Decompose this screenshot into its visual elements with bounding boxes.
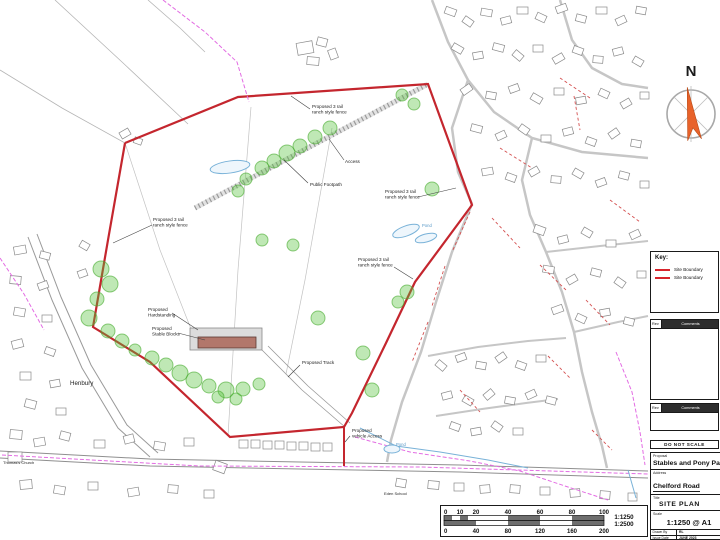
label-leader <box>113 225 152 243</box>
field-line <box>55 0 188 124</box>
scale-tick: 120 <box>535 529 546 535</box>
map-label: Proposed 3 rail <box>153 217 184 222</box>
map-label: Proposed 3 rail <box>385 189 416 194</box>
tree <box>365 383 379 397</box>
building <box>13 245 26 255</box>
road <box>522 138 607 468</box>
tree <box>311 311 325 325</box>
field-line <box>0 70 125 143</box>
road <box>0 451 648 471</box>
map-label: Eden School <box>384 491 407 496</box>
building <box>462 16 474 27</box>
label-leader <box>288 365 300 377</box>
building <box>596 7 607 14</box>
building <box>572 46 584 56</box>
building <box>590 268 601 277</box>
building <box>612 47 623 56</box>
building <box>311 443 320 451</box>
drawn-by-label: Drawn By <box>651 530 677 536</box>
building <box>575 14 586 23</box>
building <box>79 240 90 251</box>
building <box>287 442 296 450</box>
scale-ratio-label: 1:2500 <box>614 521 634 528</box>
scale-tick: 40 <box>505 510 512 516</box>
issue-date-row: Issue Date JUNE 2023 <box>651 536 720 540</box>
building <box>428 481 440 490</box>
label-leader <box>394 267 413 279</box>
building <box>533 45 543 52</box>
rev-column-header: Rev <box>651 404 662 412</box>
building <box>13 307 25 317</box>
map-label: Thomas's Church <box>3 460 34 465</box>
building <box>435 360 447 372</box>
building <box>44 347 56 357</box>
building <box>492 43 504 53</box>
building <box>296 41 314 56</box>
address-label: Address <box>653 471 720 475</box>
building <box>551 304 564 314</box>
building <box>551 176 562 184</box>
building <box>455 353 467 363</box>
revision-panel: Rev Comments <box>650 319 719 400</box>
boundary-dash <box>560 78 590 98</box>
building <box>20 372 31 380</box>
building <box>606 240 616 247</box>
building <box>24 399 37 410</box>
building <box>119 128 131 139</box>
tree <box>159 358 173 372</box>
drawn-by-value: RL <box>677 530 720 536</box>
label-leader <box>284 160 308 183</box>
building <box>480 8 492 17</box>
building <box>56 408 66 415</box>
key-entry-label: Site Boundary <box>674 267 703 272</box>
tree <box>93 261 109 277</box>
field-line <box>125 143 191 329</box>
building <box>11 339 24 350</box>
north-arrow-icon: N <box>660 60 720 156</box>
tree <box>279 145 295 161</box>
drawing-title: SITE PLAN <box>653 500 720 510</box>
label-leader <box>172 313 198 330</box>
proposed-track <box>268 346 350 423</box>
rev-column-header: Rev <box>651 320 662 328</box>
building <box>10 429 23 439</box>
label-leader <box>329 139 344 160</box>
tree <box>129 344 141 356</box>
building <box>127 487 139 497</box>
building <box>598 88 610 99</box>
building <box>275 441 284 449</box>
building <box>213 460 228 474</box>
building <box>528 166 540 177</box>
building <box>481 167 493 176</box>
building <box>33 437 45 447</box>
map-label: Pond <box>396 442 406 447</box>
building <box>518 124 530 135</box>
building <box>470 124 482 134</box>
map-label: Proposed <box>352 428 372 433</box>
tree <box>186 372 202 388</box>
building <box>263 441 272 449</box>
building <box>552 53 565 65</box>
building <box>555 3 568 13</box>
scale-tick: 0 <box>444 529 448 535</box>
building <box>491 421 503 432</box>
map-label: Pond <box>422 223 432 228</box>
north-arrow: N <box>660 60 720 156</box>
building <box>525 389 537 400</box>
address-value: Chelford Road <box>653 481 700 492</box>
scale-bar-rulers: 0 10 20 40 60 80 100 0 40 80 120 160 200 <box>441 506 646 535</box>
building <box>441 391 452 400</box>
building <box>629 229 641 240</box>
building <box>153 441 165 451</box>
building <box>572 168 584 179</box>
building <box>77 269 88 279</box>
tree <box>172 365 188 381</box>
building <box>462 395 474 406</box>
tree <box>81 310 97 326</box>
boundary-dash <box>610 200 640 222</box>
tree <box>400 285 414 299</box>
site-boundary-swatch <box>655 277 670 279</box>
rev-comments-header: Comments <box>662 404 718 412</box>
rev-comments-header: Comments <box>662 320 718 328</box>
map-label: Public Footpath <box>310 182 342 187</box>
building <box>239 440 248 448</box>
building <box>10 276 22 285</box>
map-label: Hardstanding <box>148 313 176 318</box>
scale-bar: 0 10 20 40 60 80 100 0 40 80 120 160 200 <box>440 505 648 537</box>
boundary-dash <box>548 356 570 378</box>
revision-panel: Rev Comments <box>650 403 719 431</box>
building <box>184 438 194 446</box>
building <box>328 48 339 60</box>
key-entry: Site Boundary <box>655 275 718 280</box>
map-label: ranch style fence <box>153 223 188 228</box>
tree <box>408 98 420 110</box>
building <box>630 139 641 148</box>
tree <box>90 292 104 306</box>
footpath-magenta <box>0 258 44 330</box>
building <box>585 137 597 147</box>
map-label: Proposed <box>152 326 172 331</box>
tree <box>293 139 307 153</box>
map-label: Stable Blocks <box>152 332 181 337</box>
building <box>608 128 620 139</box>
building <box>620 98 632 109</box>
tree <box>115 334 129 348</box>
building <box>485 91 496 100</box>
building <box>470 427 481 436</box>
building <box>530 93 543 105</box>
scale-tick: 20 <box>473 510 480 516</box>
building <box>20 479 33 489</box>
building <box>618 171 629 180</box>
building <box>575 313 587 324</box>
map-label: Proposed Track <box>302 360 335 365</box>
building <box>515 361 527 371</box>
building <box>533 224 546 235</box>
footpath-magenta <box>616 352 645 465</box>
building <box>37 281 49 291</box>
building <box>581 227 593 238</box>
building <box>49 379 60 388</box>
scale-tick: 200 <box>599 529 610 535</box>
pond <box>391 222 421 241</box>
map-label: Proposed <box>148 307 168 312</box>
building <box>39 251 50 260</box>
building <box>454 483 464 491</box>
building <box>512 50 524 62</box>
site-plan-map-canvas: Proposed 3 railranch style fenceProposed… <box>0 0 650 540</box>
map-label: Henbury <box>70 380 94 387</box>
tree <box>308 130 322 144</box>
label-leader <box>345 436 350 442</box>
building <box>483 389 495 401</box>
building <box>475 361 486 370</box>
map-label: Proposed 3 rail <box>312 104 343 109</box>
building <box>614 277 626 288</box>
building <box>88 482 98 490</box>
scale-tick: 10 <box>457 510 464 516</box>
road <box>387 204 472 462</box>
building <box>449 422 461 432</box>
tree <box>240 173 252 185</box>
building <box>495 352 507 363</box>
north-label: N <box>686 63 697 80</box>
road <box>428 338 566 356</box>
building <box>204 490 214 498</box>
building <box>299 442 308 450</box>
label-leader <box>291 96 310 109</box>
building <box>615 15 627 26</box>
building <box>554 88 564 95</box>
site-boundary-swatch <box>655 269 670 271</box>
tree <box>232 185 244 197</box>
proposed-stable-block <box>198 337 256 348</box>
building <box>123 434 135 444</box>
building <box>593 56 604 64</box>
boundary-dash <box>432 266 445 306</box>
footpath-magenta <box>163 0 249 102</box>
building <box>495 130 507 141</box>
building <box>575 96 586 105</box>
tree <box>356 346 370 360</box>
road <box>452 80 472 204</box>
address-row: Address Chelford Road <box>651 470 720 495</box>
building <box>395 478 406 488</box>
building <box>505 173 517 183</box>
building <box>536 355 546 362</box>
building <box>562 127 573 136</box>
building <box>535 12 547 23</box>
building <box>540 487 550 495</box>
title-row: Title SITE PLAN <box>651 495 720 512</box>
key-panel: Key: Site Boundary Site Boundary <box>650 251 719 313</box>
tree <box>202 379 216 393</box>
tree <box>323 121 337 135</box>
drawn-by-row: Drawn By RL <box>651 530 720 537</box>
building <box>517 7 528 14</box>
building <box>94 440 105 448</box>
building <box>570 489 581 498</box>
building <box>632 56 644 67</box>
tree <box>396 89 408 101</box>
key-heading: Key: <box>655 255 718 261</box>
tree <box>101 324 115 338</box>
scale-tick: 0 <box>444 510 448 516</box>
pond <box>414 231 437 244</box>
key-entry: Site Boundary <box>655 267 718 272</box>
building <box>42 315 52 322</box>
building <box>541 135 551 142</box>
tree <box>145 351 159 365</box>
drawing-sheet: Proposed 3 railranch style fenceProposed… <box>0 0 720 540</box>
tree <box>392 296 404 308</box>
building <box>510 485 521 494</box>
scale-tick: 80 <box>505 529 512 535</box>
building <box>480 485 491 494</box>
map-label: ranch style fence <box>312 110 347 115</box>
scale-tick: 100 <box>599 510 610 516</box>
building <box>307 56 320 65</box>
building <box>637 271 646 278</box>
building <box>59 431 71 441</box>
map-label: Access <box>345 159 361 164</box>
site-boundary <box>93 84 472 437</box>
building <box>640 92 649 99</box>
issue-date-label: Issue Date <box>651 536 677 540</box>
building <box>323 443 332 451</box>
tree <box>287 239 299 251</box>
building <box>504 396 515 405</box>
building <box>566 274 578 285</box>
tree <box>253 378 265 390</box>
key-entry-label: Site Boundary <box>674 275 703 280</box>
road <box>436 399 558 416</box>
building <box>595 178 607 188</box>
scale-tick: 60 <box>537 510 544 516</box>
map-label: ranch style fence <box>358 263 393 268</box>
building <box>251 440 260 448</box>
map-label: vehicle Access <box>352 434 383 439</box>
scale-ratio-label: 1:1250 <box>614 514 634 521</box>
do-not-scale-note: DO NOT SCALE <box>650 440 719 449</box>
building <box>545 396 556 405</box>
building <box>599 308 610 317</box>
scale-tick: 40 <box>473 529 480 535</box>
tree <box>256 234 268 246</box>
building <box>635 6 646 15</box>
boundary-dash <box>492 218 520 248</box>
map-label: ranch style fence <box>385 195 420 200</box>
tree <box>230 393 242 405</box>
building <box>168 485 179 494</box>
building <box>444 6 457 16</box>
tree <box>212 391 224 403</box>
building <box>508 84 520 94</box>
title-block: Proposal Stables and Pony Pa Address Che… <box>650 452 720 540</box>
scale-row: Scale 1:1250 @ A1 <box>651 511 720 530</box>
building <box>640 181 649 188</box>
scale-value: 1:1250 @ A1 <box>653 516 720 528</box>
building <box>513 428 523 435</box>
map-label: Proposed 3 rail <box>358 257 389 262</box>
building <box>316 37 328 47</box>
proposal-value: Stables and Pony Pa <box>653 458 720 468</box>
building <box>557 235 568 244</box>
building <box>53 485 65 495</box>
building <box>500 16 511 25</box>
building <box>472 51 483 60</box>
footpath-magenta <box>2 455 648 474</box>
proposal-row: Proposal Stables and Pony Pa <box>651 453 720 470</box>
scale-tick: 160 <box>567 529 578 535</box>
tree <box>102 276 118 292</box>
tree <box>267 154 281 168</box>
issue-date-value: JUNE 2023 <box>677 536 720 540</box>
site-plan-map: Proposed 3 railranch style fenceProposed… <box>0 0 650 540</box>
scale-tick: 80 <box>569 510 576 516</box>
